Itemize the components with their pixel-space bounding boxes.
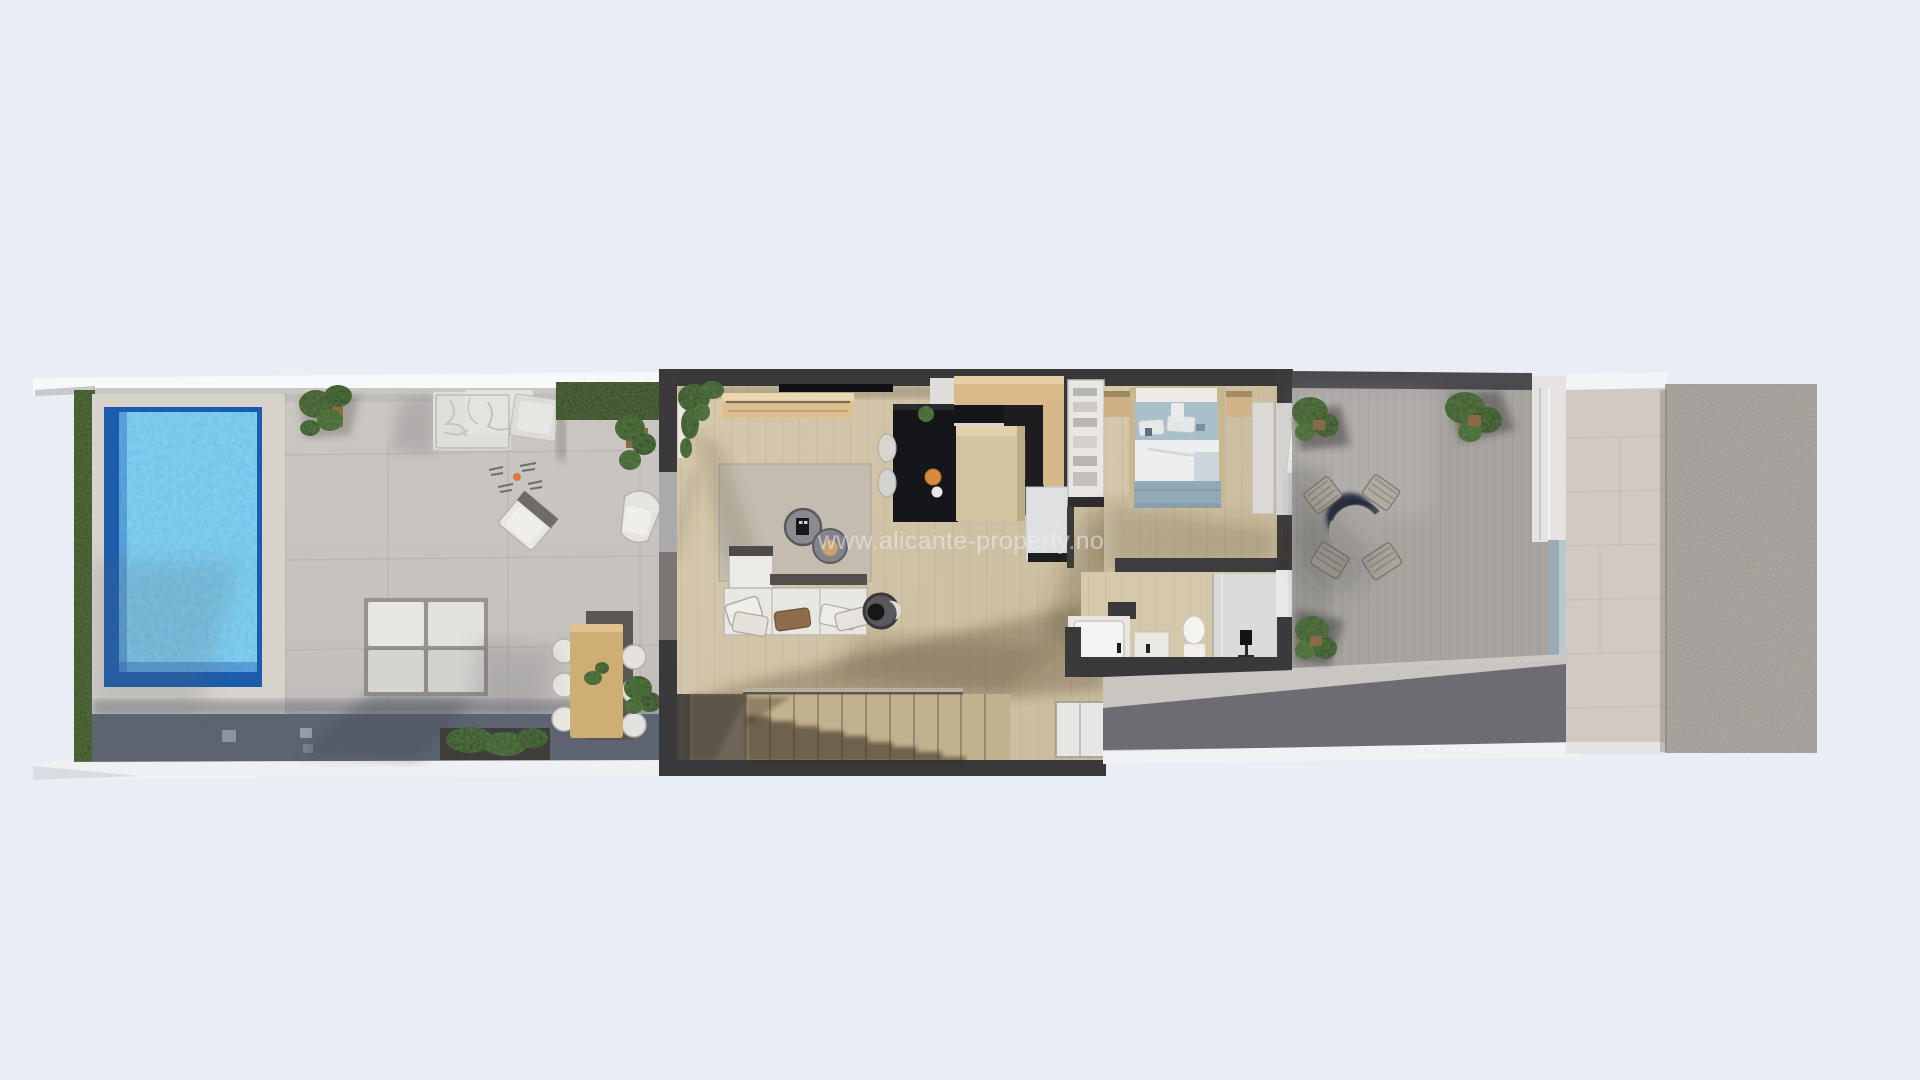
- svg-text:www.alicante-property.no: www.alicante-property.no: [817, 527, 1104, 555]
